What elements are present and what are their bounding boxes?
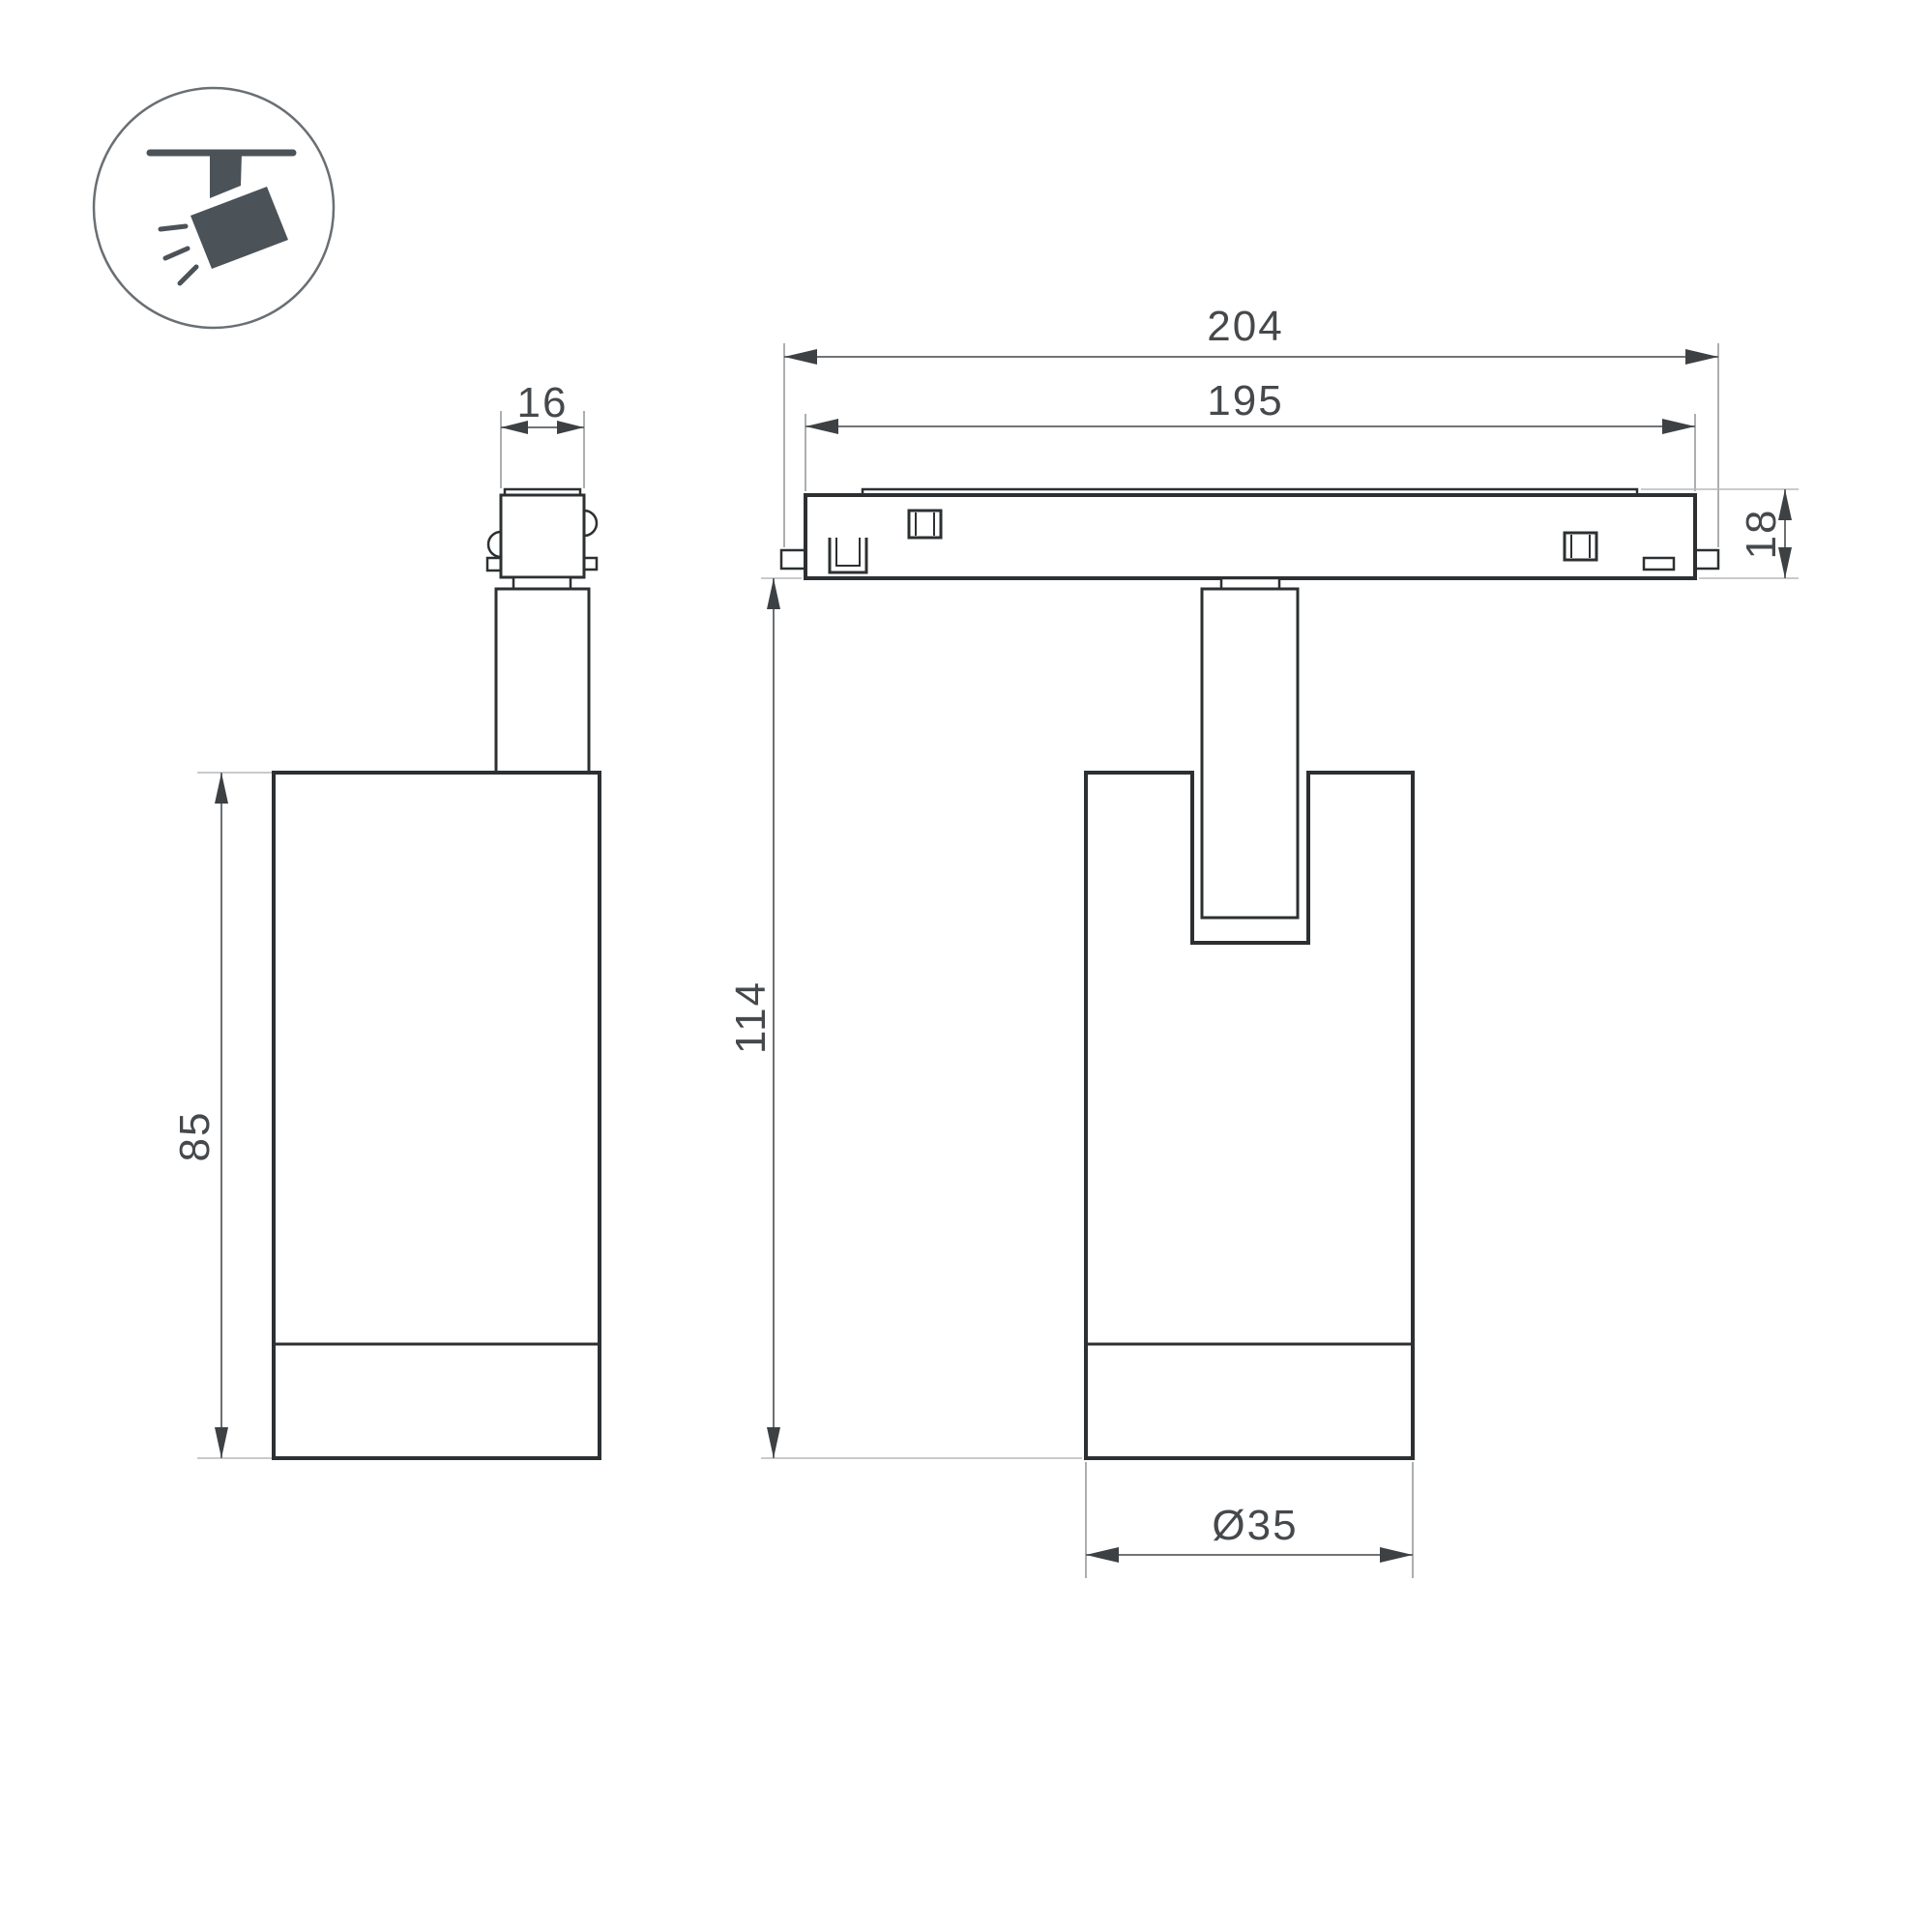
track-slot-detail — [1644, 558, 1674, 570]
connector-tab-right — [584, 558, 597, 570]
dimension-label-85: 85 — [171, 1111, 219, 1162]
front-stem — [1202, 589, 1298, 918]
track-end-tab-left — [781, 550, 805, 569]
track-end-tab-right — [1695, 550, 1718, 569]
dimension-label-18: 18 — [1738, 509, 1785, 560]
dimension-total-height: 114 — [727, 578, 1082, 1458]
dimension-side-width: 16 — [501, 379, 584, 488]
icon-light-ray-2 — [165, 249, 188, 258]
arrow-right — [1685, 349, 1718, 365]
arrow-down — [215, 1427, 228, 1458]
dimension-label-114: 114 — [727, 981, 775, 1054]
arrow-right — [1380, 1547, 1413, 1563]
icon-light-ray-3 — [180, 267, 196, 283]
technical-drawing: 16 85 — [0, 0, 1932, 1932]
arrow-right — [1662, 419, 1695, 434]
front-neck — [1221, 578, 1279, 589]
icon-spot-body — [190, 187, 288, 269]
drawing-canvas: 16 85 — [0, 0, 1932, 1932]
arrow-left — [784, 349, 817, 365]
side-neck — [513, 577, 571, 589]
dimension-label-d35: Ø35 — [1212, 1502, 1298, 1549]
icon-mount-stem — [210, 153, 242, 198]
arrow-down — [767, 1427, 780, 1458]
side-body — [274, 773, 600, 1458]
front-view: 204 195 — [727, 303, 1799, 1578]
side-track-connector — [487, 489, 597, 577]
connector-tab-left — [487, 558, 501, 571]
dimension-label-204: 204 — [1207, 303, 1283, 350]
dimension-side-height: 85 — [171, 773, 272, 1458]
track-rail — [781, 489, 1718, 578]
ceiling-spotlight-icon — [94, 88, 334, 328]
dimension-label-16: 16 — [517, 379, 569, 426]
dimension-body-diameter: Ø35 — [1086, 1462, 1413, 1578]
dimension-track-inner: 195 — [805, 377, 1695, 491]
arrow-left — [1086, 1547, 1119, 1563]
arrow-left — [805, 419, 838, 434]
arrow-up — [215, 773, 228, 804]
arrow-up — [767, 578, 780, 609]
dimension-label-195: 195 — [1207, 377, 1283, 424]
side-view: 16 85 — [171, 379, 600, 1458]
connector-body — [501, 495, 584, 577]
icon-light-ray-1 — [161, 226, 186, 229]
side-stem — [496, 589, 589, 773]
